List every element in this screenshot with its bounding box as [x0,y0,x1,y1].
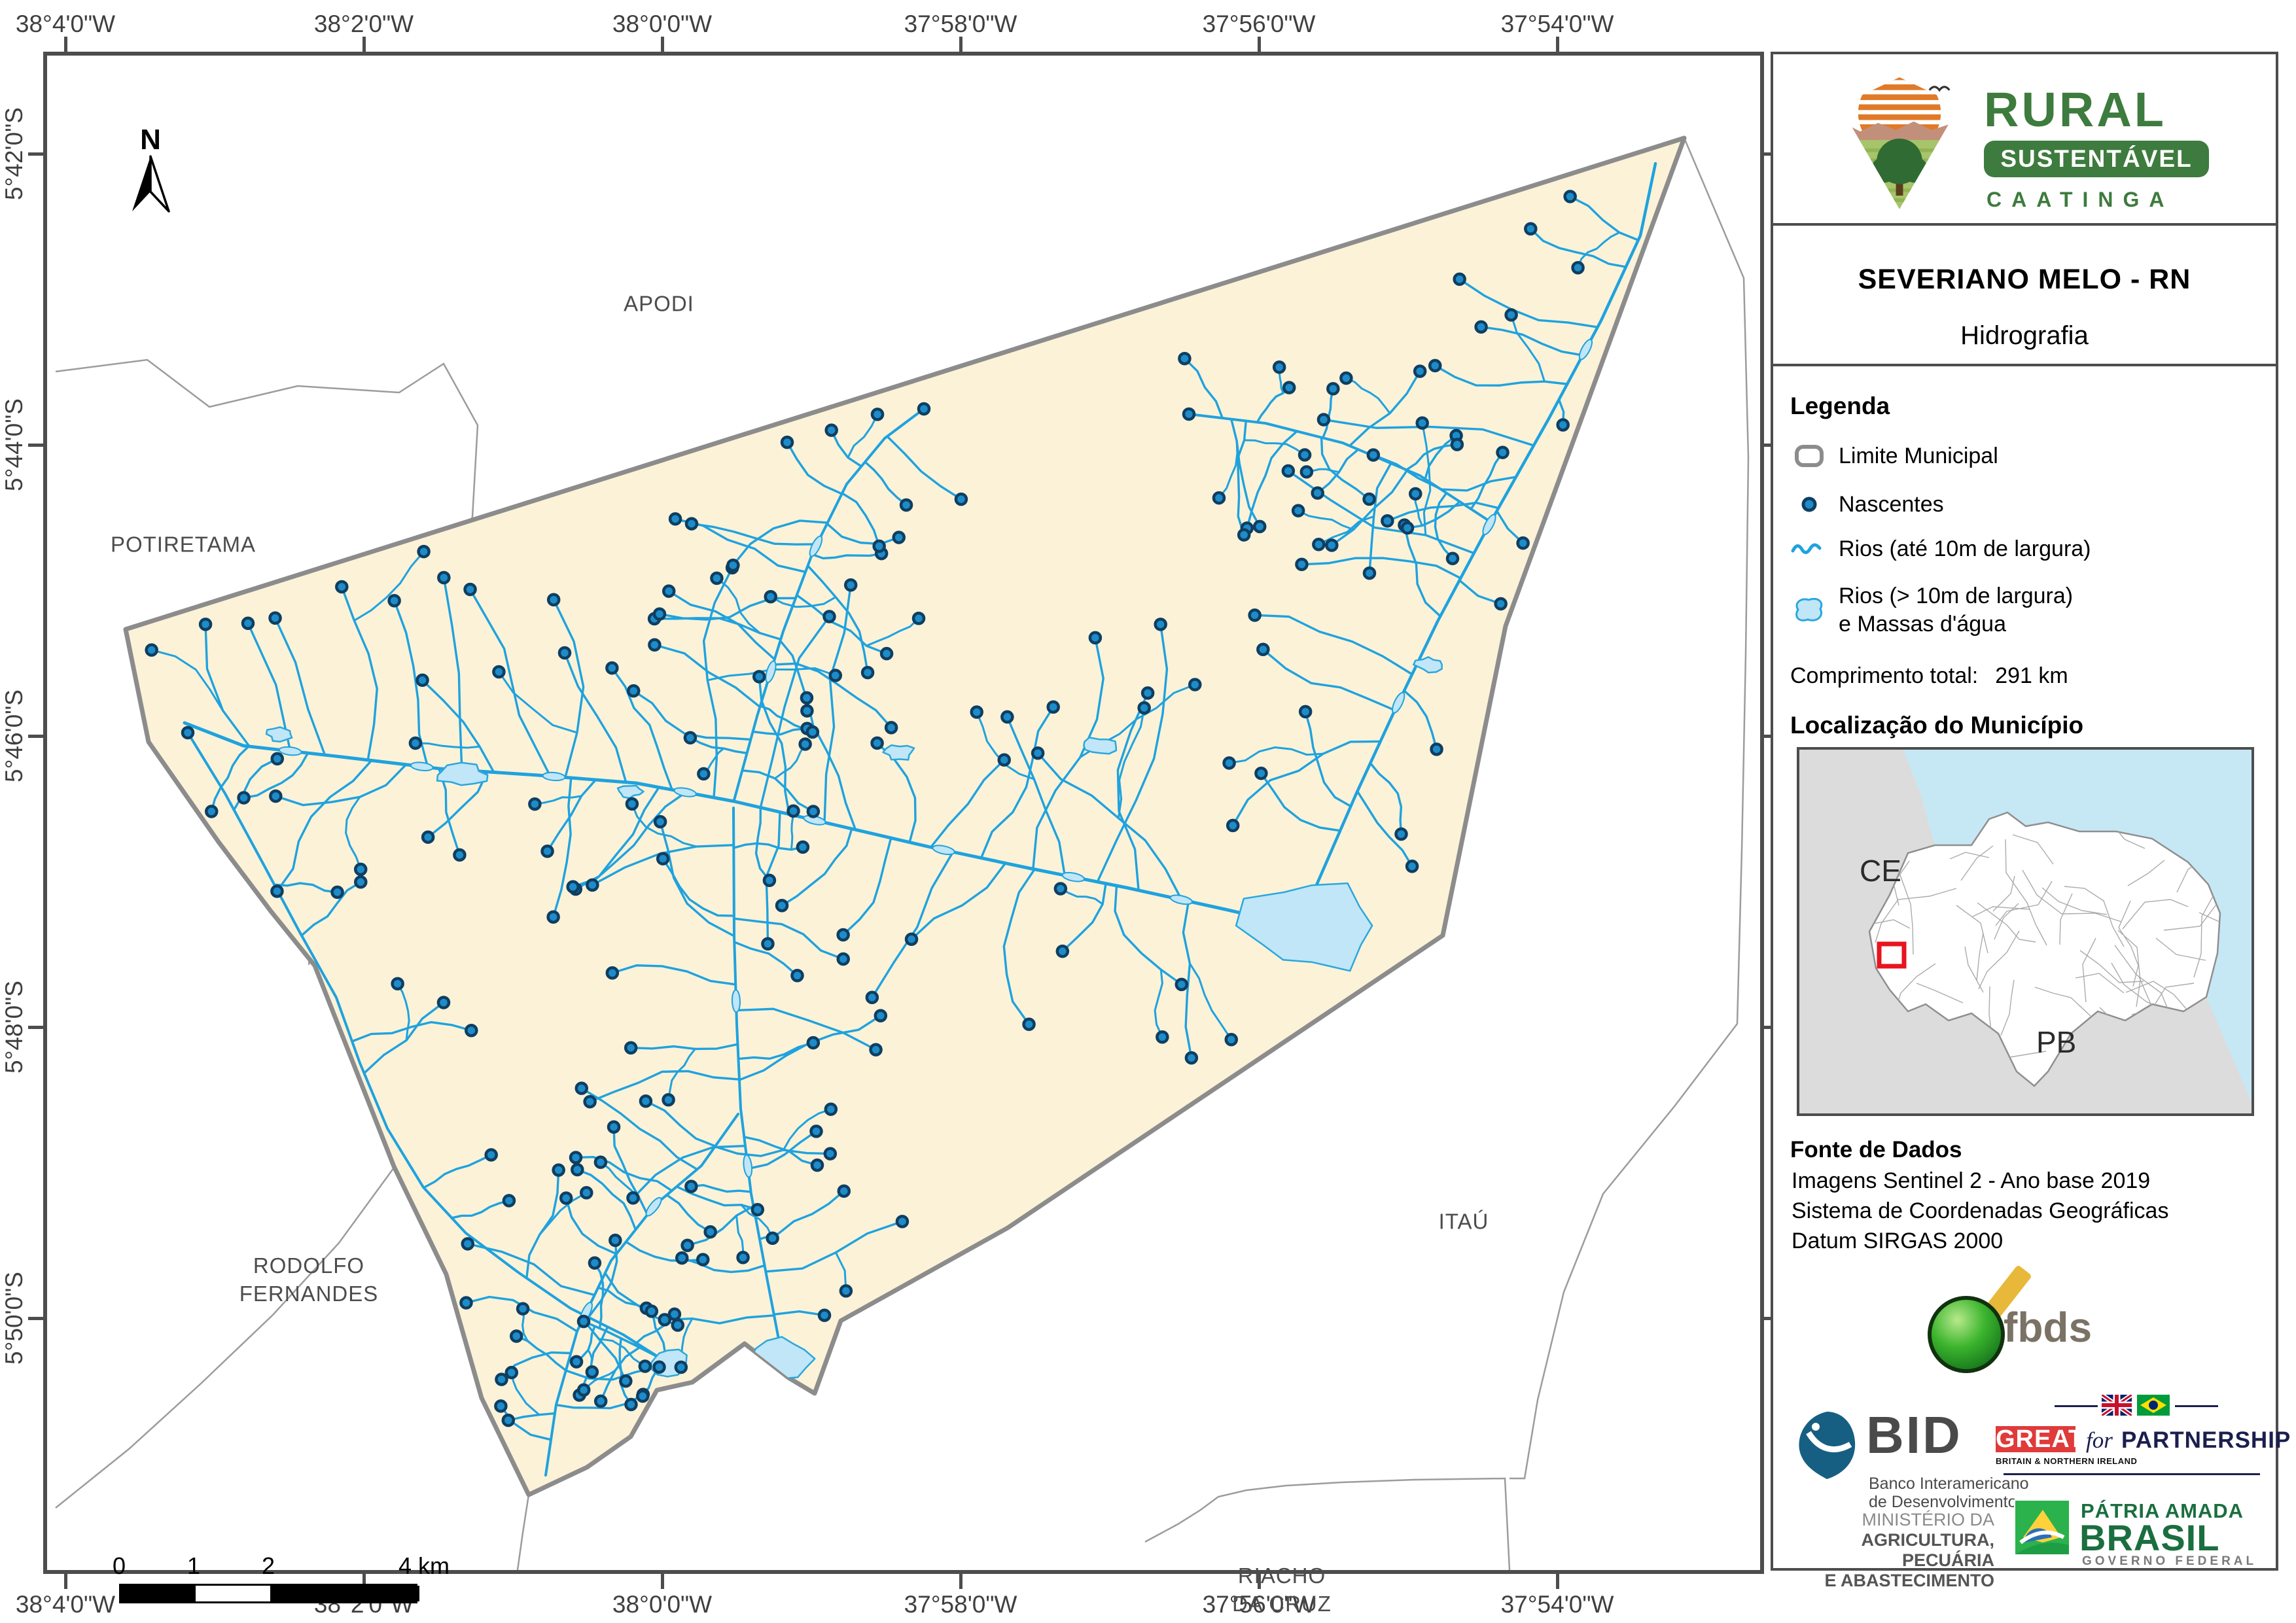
spring-point [826,1104,836,1115]
spring-point [881,648,892,659]
spring-point [906,934,917,945]
spring-point [999,755,1010,765]
spring-point [685,733,696,743]
spring-point [1176,979,1187,990]
boundary-line [518,1495,529,1570]
spring-point [830,670,841,680]
spring-point [825,1149,836,1159]
spring-point [511,1331,521,1341]
location-heading: Localização do Município [1790,712,2083,739]
bid-logo-icon [1795,1409,1858,1482]
spring-point [811,1126,821,1136]
spring-point [272,754,283,764]
scale-bar-track [119,1584,417,1603]
spring-point [355,864,366,875]
governo-federal-text: GOVERNO FEDERAL [2082,1554,2257,1569]
ministry-line: E ABASTECIMENTO [1790,1571,1994,1591]
spring-point [272,886,282,896]
spring-point [901,500,911,510]
spring-point [417,675,428,686]
spring-point [270,613,281,623]
legend-heading: Legenda [1790,393,1890,420]
spring-point [1447,553,1458,564]
spring-point [270,791,281,801]
spring-point [698,1255,708,1265]
spring-point [506,1367,517,1378]
spring-point [438,572,449,583]
spring-point [867,992,877,1003]
spring-point [1055,883,1066,894]
spring-point [728,560,738,570]
spring-point [595,1396,606,1406]
municipal-limit-icon [1793,444,1825,468]
area-label: ITAÚ [1439,1208,1489,1236]
spring-point [559,648,570,658]
scale-end-label: 4 km [385,1552,463,1580]
spring-point [646,1306,657,1316]
graticule-label: 38°0'0"W [590,10,734,38]
spring-point [607,968,618,978]
spring-point [496,1374,506,1385]
spring-point [754,671,764,682]
spring-point [838,954,849,964]
graticule-tick [1258,37,1261,52]
spring-icon [1798,493,1820,515]
spring-point [576,1083,587,1094]
bird-icon [1930,87,1950,90]
legend-item-label: Rios (> 10m de largura) e Massas d'água [1839,582,2073,638]
spring-point [1024,1019,1034,1030]
spring-point [711,573,722,584]
title-box: SEVERIANO MELO - RN Hidrografia [1771,223,2278,366]
spring-point [1525,224,1536,234]
spring-point [626,1399,636,1410]
spring-point [504,1195,514,1206]
spring-point [1313,488,1323,498]
spring-point [627,1193,638,1203]
spring-point [1410,489,1421,499]
spring-point [1002,712,1012,722]
spring-point [1274,362,1284,372]
state-map [1799,750,2252,1113]
source-line: Datum SIRGAS 2000 [1792,1229,2003,1254]
north-arrow-icon [126,154,175,217]
spring-point [972,707,982,718]
graticule-tick [362,37,366,52]
spring-point [663,586,674,597]
spring-point [698,769,709,779]
graticule-label: 5°42'0"S [0,82,29,226]
spring-point [1142,688,1153,698]
spring-point [1250,610,1260,620]
spring-point [1368,449,1379,460]
total-length-value: 291 km [1995,662,2068,690]
source-heading: Fonte de Dados [1790,1137,1962,1163]
area-label: APODI [624,290,694,319]
water-body [1084,737,1116,754]
great-underline [2004,1473,2260,1475]
spring-point [913,613,924,623]
program-logo-box: RURAL SUSTENTÁVEL CAATINGA [1771,52,2278,226]
hydrography-map [47,56,1760,1570]
spring-point [800,739,811,750]
fbds-logo-text: fbds [2004,1303,2092,1352]
spring-point [1184,409,1194,419]
spring-point [655,816,665,827]
spring-point [1382,515,1392,526]
area-label: POTIRETAMA [111,531,256,559]
spring-point [518,1304,528,1314]
spring-point [628,686,639,696]
great-for-word: for [2086,1427,2113,1454]
spring-point [640,1361,650,1372]
spring-point [503,1415,514,1425]
spring-point [872,738,883,748]
spring-point [466,1025,476,1036]
spring-point [438,997,449,1007]
spring-point [336,582,347,592]
spring-point [1396,829,1406,839]
spring-point [1518,538,1528,548]
graticule-tick [1556,1574,1559,1589]
spring-point [677,1253,687,1263]
spring-point [919,404,929,414]
source-line: Sistema de Coordenadas Geográficas [1792,1198,2168,1224]
spring-point [572,1164,582,1175]
spring-point [200,619,211,629]
spring-point [571,1152,581,1162]
graticule-tick [959,37,963,52]
spring-point [1300,707,1311,717]
graticule-tick [28,1026,43,1029]
wide-river-segment [732,990,740,1012]
spring-point [956,494,966,504]
spring-point [147,645,157,655]
spring-point [243,618,253,629]
spring-point [1156,619,1166,629]
spring-point [206,806,217,816]
spring-point [571,1357,582,1367]
spring-point [595,1157,606,1168]
program-subtitle: SUSTENTÁVEL [1984,141,2209,177]
spring-point [610,1235,620,1246]
spring-point [1227,820,1238,831]
graticule-label: 38°2'0"W [292,10,436,38]
spring-point [1318,414,1329,425]
spring-point [874,541,885,551]
graticule-label: 37°54'0"W [1485,10,1629,38]
great-partnership-text: PARTNERSHIP [2121,1427,2291,1454]
spring-point [1364,494,1375,504]
graticule-tick [28,1317,43,1320]
river-line-icon [1791,539,1828,559]
ministry-caption: MINISTÉRIO DA AGRICULTURA, PECUÁRIA E AB… [1790,1510,1994,1591]
graticule-label: 38°4'0"W [0,10,137,38]
spring-point [1407,861,1417,871]
spring-point [355,877,366,887]
spring-point [454,850,465,860]
spring-point [1498,447,1508,458]
spring-point [663,1094,674,1105]
ministry-line: AGRICULTURA, PECUÁRIA [1790,1530,1994,1571]
spring-point [607,663,617,673]
map-sheet: { "map": { "north_label": "N", "graticul… [0,0,2296,1623]
ministry-line: MINISTÉRIO DA [1790,1510,1994,1530]
spring-point [641,1096,651,1106]
area-label: RODOLFO FERNANDES [239,1252,379,1308]
spring-point [658,854,668,864]
graticule-label: 37°54'0"W [1485,1591,1629,1618]
boundary-line [56,1168,394,1508]
spring-point [1313,539,1324,550]
state-label-ce: CE [1860,853,1901,888]
spring-point [875,1011,886,1021]
spring-point [762,939,773,949]
spring-point [654,609,665,620]
spring-point [590,1258,600,1268]
spring-point [542,846,553,856]
spring-point [894,532,904,543]
great-caption: BRITAIN & NORTHERN IRELAND [1996,1456,2137,1466]
spring-point [1565,191,1576,201]
graticule-tick [28,735,43,738]
spring-point [587,1367,597,1377]
spring-point [766,591,776,602]
spring-point [824,611,834,621]
spring-point [1186,1053,1197,1063]
scale-bar: 0 1 2 4 km [119,1552,486,1611]
brasil-text: BRASIL [2079,1516,2219,1559]
spring-point [654,1362,664,1372]
spring-point [686,519,697,529]
legend-item-label: Nascentes [1839,491,1944,519]
spring-point [1496,599,1506,609]
map-frame: APODIPOTIRETAMARODOLFO FERNANDESITAÚRIAC… [43,52,1764,1574]
spring-point [1415,366,1425,376]
governo-federal-logo-icon [2014,1499,2070,1556]
uk-flag-icon [2102,1395,2132,1416]
spring-point [839,1186,849,1196]
spring-point [1326,540,1337,551]
spring-point [554,1165,564,1176]
spring-point [548,595,559,605]
spring-point [393,979,403,989]
flag-divider [2055,1405,2098,1407]
spring-point [486,1149,497,1160]
scale-segment [270,1586,419,1601]
scale-tick-2: 2 [242,1552,294,1580]
graticule-tick [661,1574,664,1589]
spring-point [1328,383,1338,394]
spring-point [620,1376,631,1386]
spring-point [495,1401,506,1411]
spring-point [419,546,429,557]
spring-point [627,799,637,809]
spring-point [587,880,597,890]
spring-point [1364,568,1375,578]
spring-point [845,580,856,590]
graticule-label: 5°46'0"S [0,664,29,808]
spring-point [871,1045,881,1055]
spring-point [1254,521,1265,532]
spring-point [1417,418,1428,428]
spring-point [578,1385,589,1395]
spring-point [807,727,818,737]
spring-point [1476,322,1487,332]
spring-point [738,1252,749,1263]
spring-point [1033,748,1043,758]
spring-point [529,799,540,809]
bid-logo-text: BID [1866,1405,1962,1465]
spring-point [637,1391,648,1401]
spring-point [705,1227,716,1237]
spring-point [1284,382,1294,393]
spring-point [561,1193,571,1204]
spring-point [1558,419,1568,430]
area-label: RIACHO DA CRUZ [1232,1562,1332,1618]
spring-point [686,1181,696,1192]
north-label: N [124,124,177,156]
program-title: RURAL [1984,82,2166,137]
graticule-tick [28,444,43,447]
spring-point [669,1309,680,1319]
spring-point [808,1038,819,1048]
graticule-tick [959,1574,963,1589]
spring-point [1214,493,1224,503]
legend-item-label: Limite Municipal [1839,442,1998,470]
spring-point [872,409,883,419]
map-subtitle: Hidrografia [1773,321,2276,351]
spring-point [841,1285,851,1296]
spring-point [183,727,193,738]
spring-point [1179,353,1190,364]
spring-point [1432,744,1442,754]
spring-point [777,900,787,911]
spring-point [1573,262,1583,273]
map-title: SEVERIANO MELO - RN [1773,264,2276,296]
spring-point [1057,946,1068,956]
program-footer: CAATINGA [1987,188,2174,212]
spring-point [1226,1034,1237,1045]
spring-point [798,842,808,852]
spring-point [1430,360,1440,371]
spring-point [788,806,799,816]
spring-point [1283,466,1294,476]
spring-point [410,738,421,748]
spring-point [1455,274,1465,285]
source-line: Imagens Sentinel 2 - Ano base 2019 [1792,1168,2150,1194]
spring-point [1139,703,1150,713]
spring-point [1301,466,1312,477]
spring-point [673,1320,683,1331]
spring-point [819,1310,830,1321]
spring-point [332,887,343,898]
spring-point [1506,309,1517,320]
spring-point [808,806,819,816]
spring-point [838,930,849,940]
spring-point [670,514,680,524]
spring-point [897,1216,908,1227]
spring-point [676,1362,686,1372]
graticule-tick [64,1574,67,1589]
spring-point [886,722,896,733]
legend-box: Legenda Limite Municipal Nascentes Rios … [1771,364,2278,1571]
state-label-pb: PB [2036,1024,2076,1060]
spring-point [626,1043,636,1053]
spring-point [465,584,476,595]
spring-point [1299,449,1310,460]
spring-point [812,1160,822,1170]
scale-tick-1: 1 [168,1552,220,1580]
spring-point [1402,523,1413,533]
location-inset-map: CE PB [1797,747,2254,1116]
spring-point [862,667,873,678]
spring-point [682,1240,693,1251]
spring-point [548,912,559,922]
graticule-label: 38°0'0"W [590,1591,734,1618]
bid-caption: Banco Interamericano [1869,1475,2029,1493]
spring-point [609,1122,619,1132]
spring-point [239,793,249,803]
brazil-flag-icon [2137,1395,2170,1416]
spring-point [802,693,812,703]
spring-point [1341,373,1351,383]
spring-point [493,667,504,677]
graticule-tick [28,152,43,156]
spring-point [1190,680,1200,690]
spring-point [389,595,400,606]
spring-point [802,706,812,716]
graticule-tick [661,37,664,52]
great-logo-text: GREAT [1996,1426,2075,1452]
graticule-label: 37°58'0"W [889,1591,1033,1618]
scale-segment [121,1586,196,1601]
spring-point [585,1096,595,1107]
spring-point [826,425,837,436]
graticule-label: 37°56'0"W [1187,10,1331,38]
spring-point [568,882,578,892]
spring-point [578,1316,589,1327]
bid-caption: de Desenvolvimento [1869,1493,2017,1512]
water-body-icon [1792,595,1827,625]
spring-point [1157,1032,1167,1042]
graticule-label: 5°50'0"S [0,1246,29,1390]
graticule-label: 37°58'0"W [889,10,1033,38]
spring-point [1224,758,1235,768]
spring-point [1090,633,1101,643]
spring-point [1293,506,1303,516]
boundary-line [1145,1478,1510,1570]
spring-point [768,1233,778,1244]
scale-tick-0: 0 [93,1552,145,1580]
graticule-label: 38°4'0"W [0,1591,137,1618]
spring-point [649,640,660,650]
spring-point [1048,702,1059,712]
spring-point [1452,440,1462,450]
legend-item-label: Rios (até 10m de largura) [1839,535,2091,563]
graticule-tick [1556,37,1559,52]
graticule-label: 5°44'0"S [0,373,29,517]
spring-point [1258,644,1268,655]
spring-point [423,832,433,843]
rural-sustentavel-logo-icon [1828,69,1971,211]
spring-point [581,1187,592,1198]
spring-point [752,1204,763,1215]
spring-point [1256,768,1266,778]
spring-point [792,970,802,981]
spring-point [764,875,775,886]
spring-point [1239,530,1249,540]
